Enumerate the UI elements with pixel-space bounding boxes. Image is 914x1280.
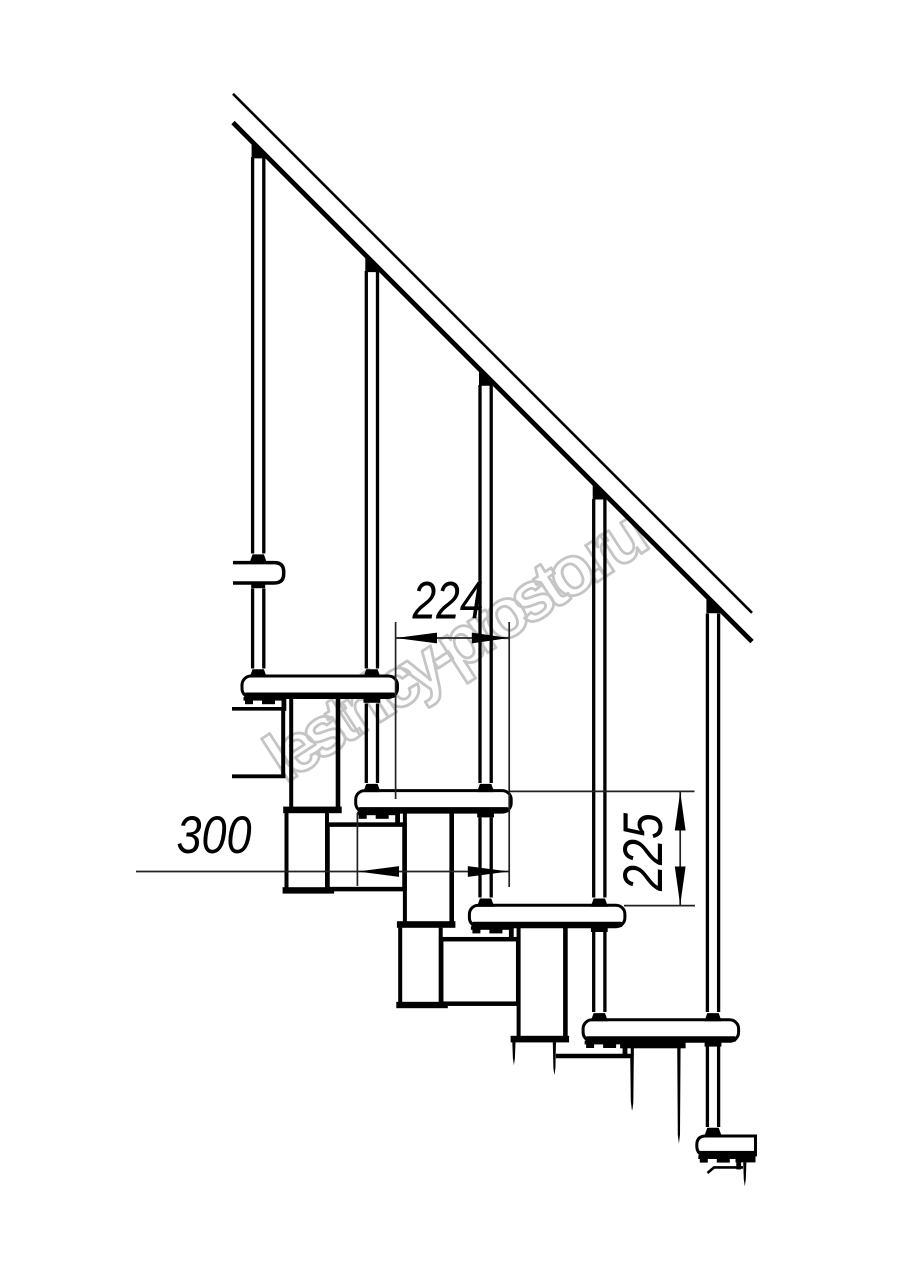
svg-text:224: 224 — [412, 572, 484, 631]
svg-text:lestnicy-prosto.ru: lestnicy-prosto.ru — [251, 495, 658, 796]
svg-text:300: 300 — [177, 806, 252, 865]
svg-text:225: 225 — [611, 812, 674, 892]
